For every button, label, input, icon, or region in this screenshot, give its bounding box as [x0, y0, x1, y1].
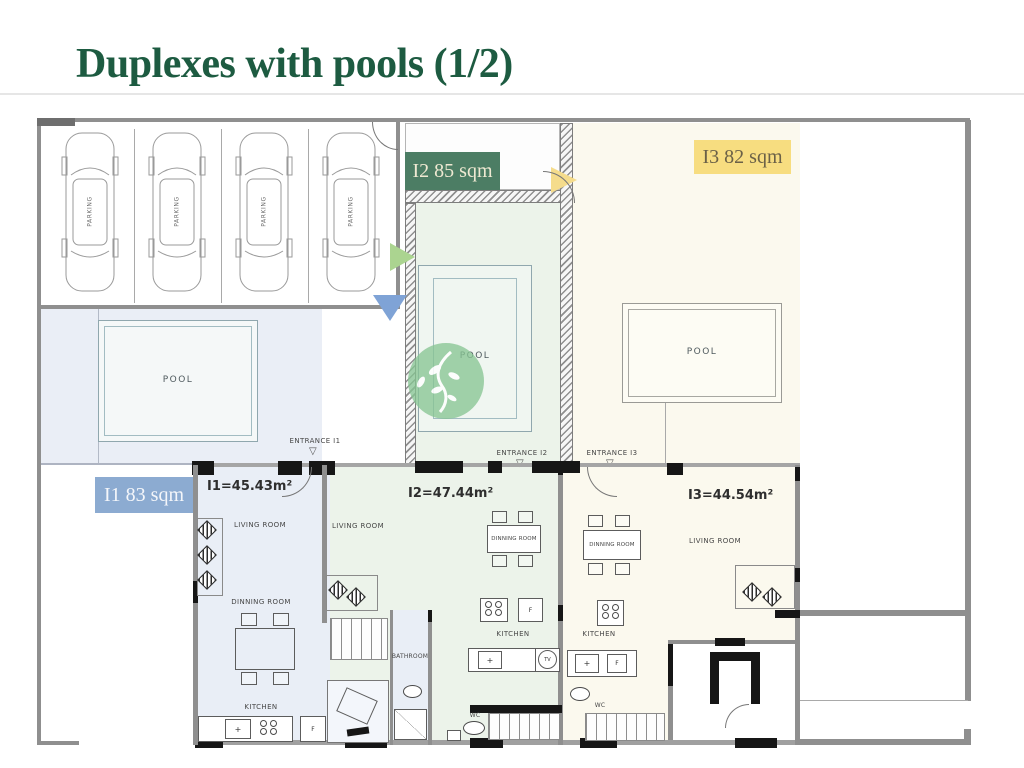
sink-icon: + — [478, 651, 502, 669]
unit3-area-label: I3=44.54m² — [688, 488, 773, 503]
stairs-icon — [585, 713, 665, 741]
entrance-3-label: ENTRANCE I3 — [572, 449, 652, 457]
sink-icon: + — [225, 719, 251, 739]
living-room-label: LIVING ROOM — [324, 522, 392, 530]
dining-table-icon: DINNING ROOM — [583, 530, 641, 560]
entrance-2-label: ENTRANCE I2 — [482, 449, 562, 457]
pool-1: POOL — [98, 320, 258, 442]
unit1-left-wall — [193, 465, 198, 745]
toilet-icon — [570, 687, 590, 701]
chair-icon — [273, 672, 289, 685]
badge-unit3-label: I3 82 sqm — [703, 146, 783, 169]
badge-unit2-label: I2 85 sqm — [413, 160, 493, 183]
parking-bottom-wall — [37, 305, 400, 309]
sink-icon: + — [575, 654, 599, 673]
wall-column — [532, 461, 580, 473]
wall-column — [775, 610, 800, 618]
chair-icon — [588, 563, 603, 575]
yard3-path-line — [665, 403, 666, 465]
badge-unit3: I3 82 sqm — [694, 140, 791, 174]
elevator-shaft — [710, 652, 719, 704]
chair-icon — [588, 515, 603, 527]
wall-column — [428, 610, 432, 622]
toilet-icon — [403, 685, 422, 698]
parking-right-wall — [396, 122, 400, 309]
kitchen-label: KITCHEN — [569, 630, 629, 638]
shower-icon — [394, 709, 427, 740]
pool-label: POOL — [623, 347, 781, 357]
corridor-wall — [800, 610, 966, 616]
outer-wall-left — [37, 118, 41, 745]
bathroom-label: BATHROOM — [389, 653, 431, 660]
page-title-rest: with pools (1/2) — [235, 41, 512, 87]
title-divider — [0, 93, 1024, 95]
slide-page: Duplexes with pools (1/2) — [0, 0, 1024, 768]
basin-icon — [447, 730, 461, 741]
stairs-icon — [330, 618, 388, 660]
kitchen-label: KITCHEN — [225, 703, 297, 711]
chair-icon — [615, 563, 630, 575]
outer-wall-bottom-right — [800, 739, 971, 745]
sofa-icon — [735, 565, 795, 609]
chair-icon — [492, 511, 507, 523]
fridge-box: F — [607, 654, 627, 673]
outer-wall-bottom-upturn — [964, 729, 971, 745]
chair-icon — [518, 511, 533, 523]
stairs-icon — [488, 713, 560, 740]
wall-column — [795, 467, 800, 481]
outer-wall-bottom-left-stub — [37, 741, 79, 745]
wall-column — [668, 644, 673, 686]
unit2-area-label: I2=47.44m² — [408, 486, 493, 501]
floor-plan: PARKING PARKING PARKING PARKING POOL POO… — [35, 113, 985, 763]
kitchen-label: KITCHEN — [483, 630, 543, 638]
dining-room-label: DINNING ROOM — [223, 598, 299, 606]
chair-icon — [241, 613, 257, 626]
parking-stall-line-2 — [221, 129, 222, 303]
outer-corner-block — [37, 118, 75, 126]
badge-unit2: I2 85 sqm — [405, 152, 500, 190]
dining-room-label: DINNING ROOM — [584, 531, 640, 559]
elevator-shaft — [751, 652, 760, 704]
dining-table-icon: DINNING ROOM — [487, 525, 541, 553]
wall-column — [415, 461, 463, 473]
wall-column — [735, 738, 777, 748]
parking-label: PARKING — [348, 177, 355, 247]
badge-unit1-label: I1 83 sqm — [104, 484, 184, 507]
dining-room-label: DINNING ROOM — [488, 526, 540, 552]
pool-label: POOL — [99, 375, 257, 385]
chair-icon — [241, 672, 257, 685]
parking-stall-line-3 — [308, 129, 309, 303]
pool-3: POOL — [622, 303, 782, 403]
unit3-yard-area — [553, 123, 800, 465]
bathroom-left-wall — [390, 610, 393, 745]
stove-icon — [260, 720, 279, 735]
arrow-blue-icon — [373, 295, 407, 321]
parking-label: PARKING — [174, 177, 181, 247]
entrance-1-label: ENTRANCE I1 — [275, 437, 355, 445]
watermark-leaf-logo-icon — [407, 342, 485, 420]
wc-label: WC — [591, 702, 609, 709]
corridor-line — [800, 700, 968, 701]
toilet-icon — [463, 721, 485, 735]
unit3-corridor-wall — [795, 465, 800, 745]
chair-icon — [615, 515, 630, 527]
dining-table-icon — [235, 628, 295, 670]
wc-label: WC — [465, 712, 485, 719]
badge-unit1: I1 83 sqm — [95, 477, 193, 513]
chair-icon — [492, 555, 507, 567]
entrance-marker-icon: ▽ — [309, 446, 317, 457]
page-title-bold: Duplexes — [76, 41, 235, 87]
stove-icon — [602, 604, 621, 619]
outer-wall-top — [37, 118, 970, 122]
chair-icon — [518, 555, 533, 567]
wall-column — [558, 605, 563, 621]
wall-column — [488, 461, 502, 473]
fridge-box: F — [518, 598, 543, 622]
wall-column — [715, 638, 745, 646]
pool-area-bottom-line — [37, 463, 195, 465]
stove-icon — [485, 601, 504, 616]
wall-column — [667, 463, 683, 475]
wall-column — [795, 568, 800, 582]
chair-icon — [273, 613, 289, 626]
fridge-box: F — [300, 716, 326, 742]
wall-column — [558, 465, 563, 475]
living-room-label: LIVING ROOM — [680, 537, 750, 545]
arrow-green-icon — [390, 243, 415, 271]
unit1-area-label: I1=45.43m² — [207, 479, 292, 494]
living-room-label: LIVING ROOM — [225, 521, 295, 529]
parking-label: PARKING — [87, 177, 94, 247]
page-title: Duplexes with pools (1/2) — [76, 40, 513, 88]
tv-icon: TV — [538, 650, 557, 669]
bathroom-right-wall — [428, 610, 432, 745]
parking-label: PARKING — [261, 177, 268, 247]
parking-stall-line-1 — [134, 129, 135, 303]
